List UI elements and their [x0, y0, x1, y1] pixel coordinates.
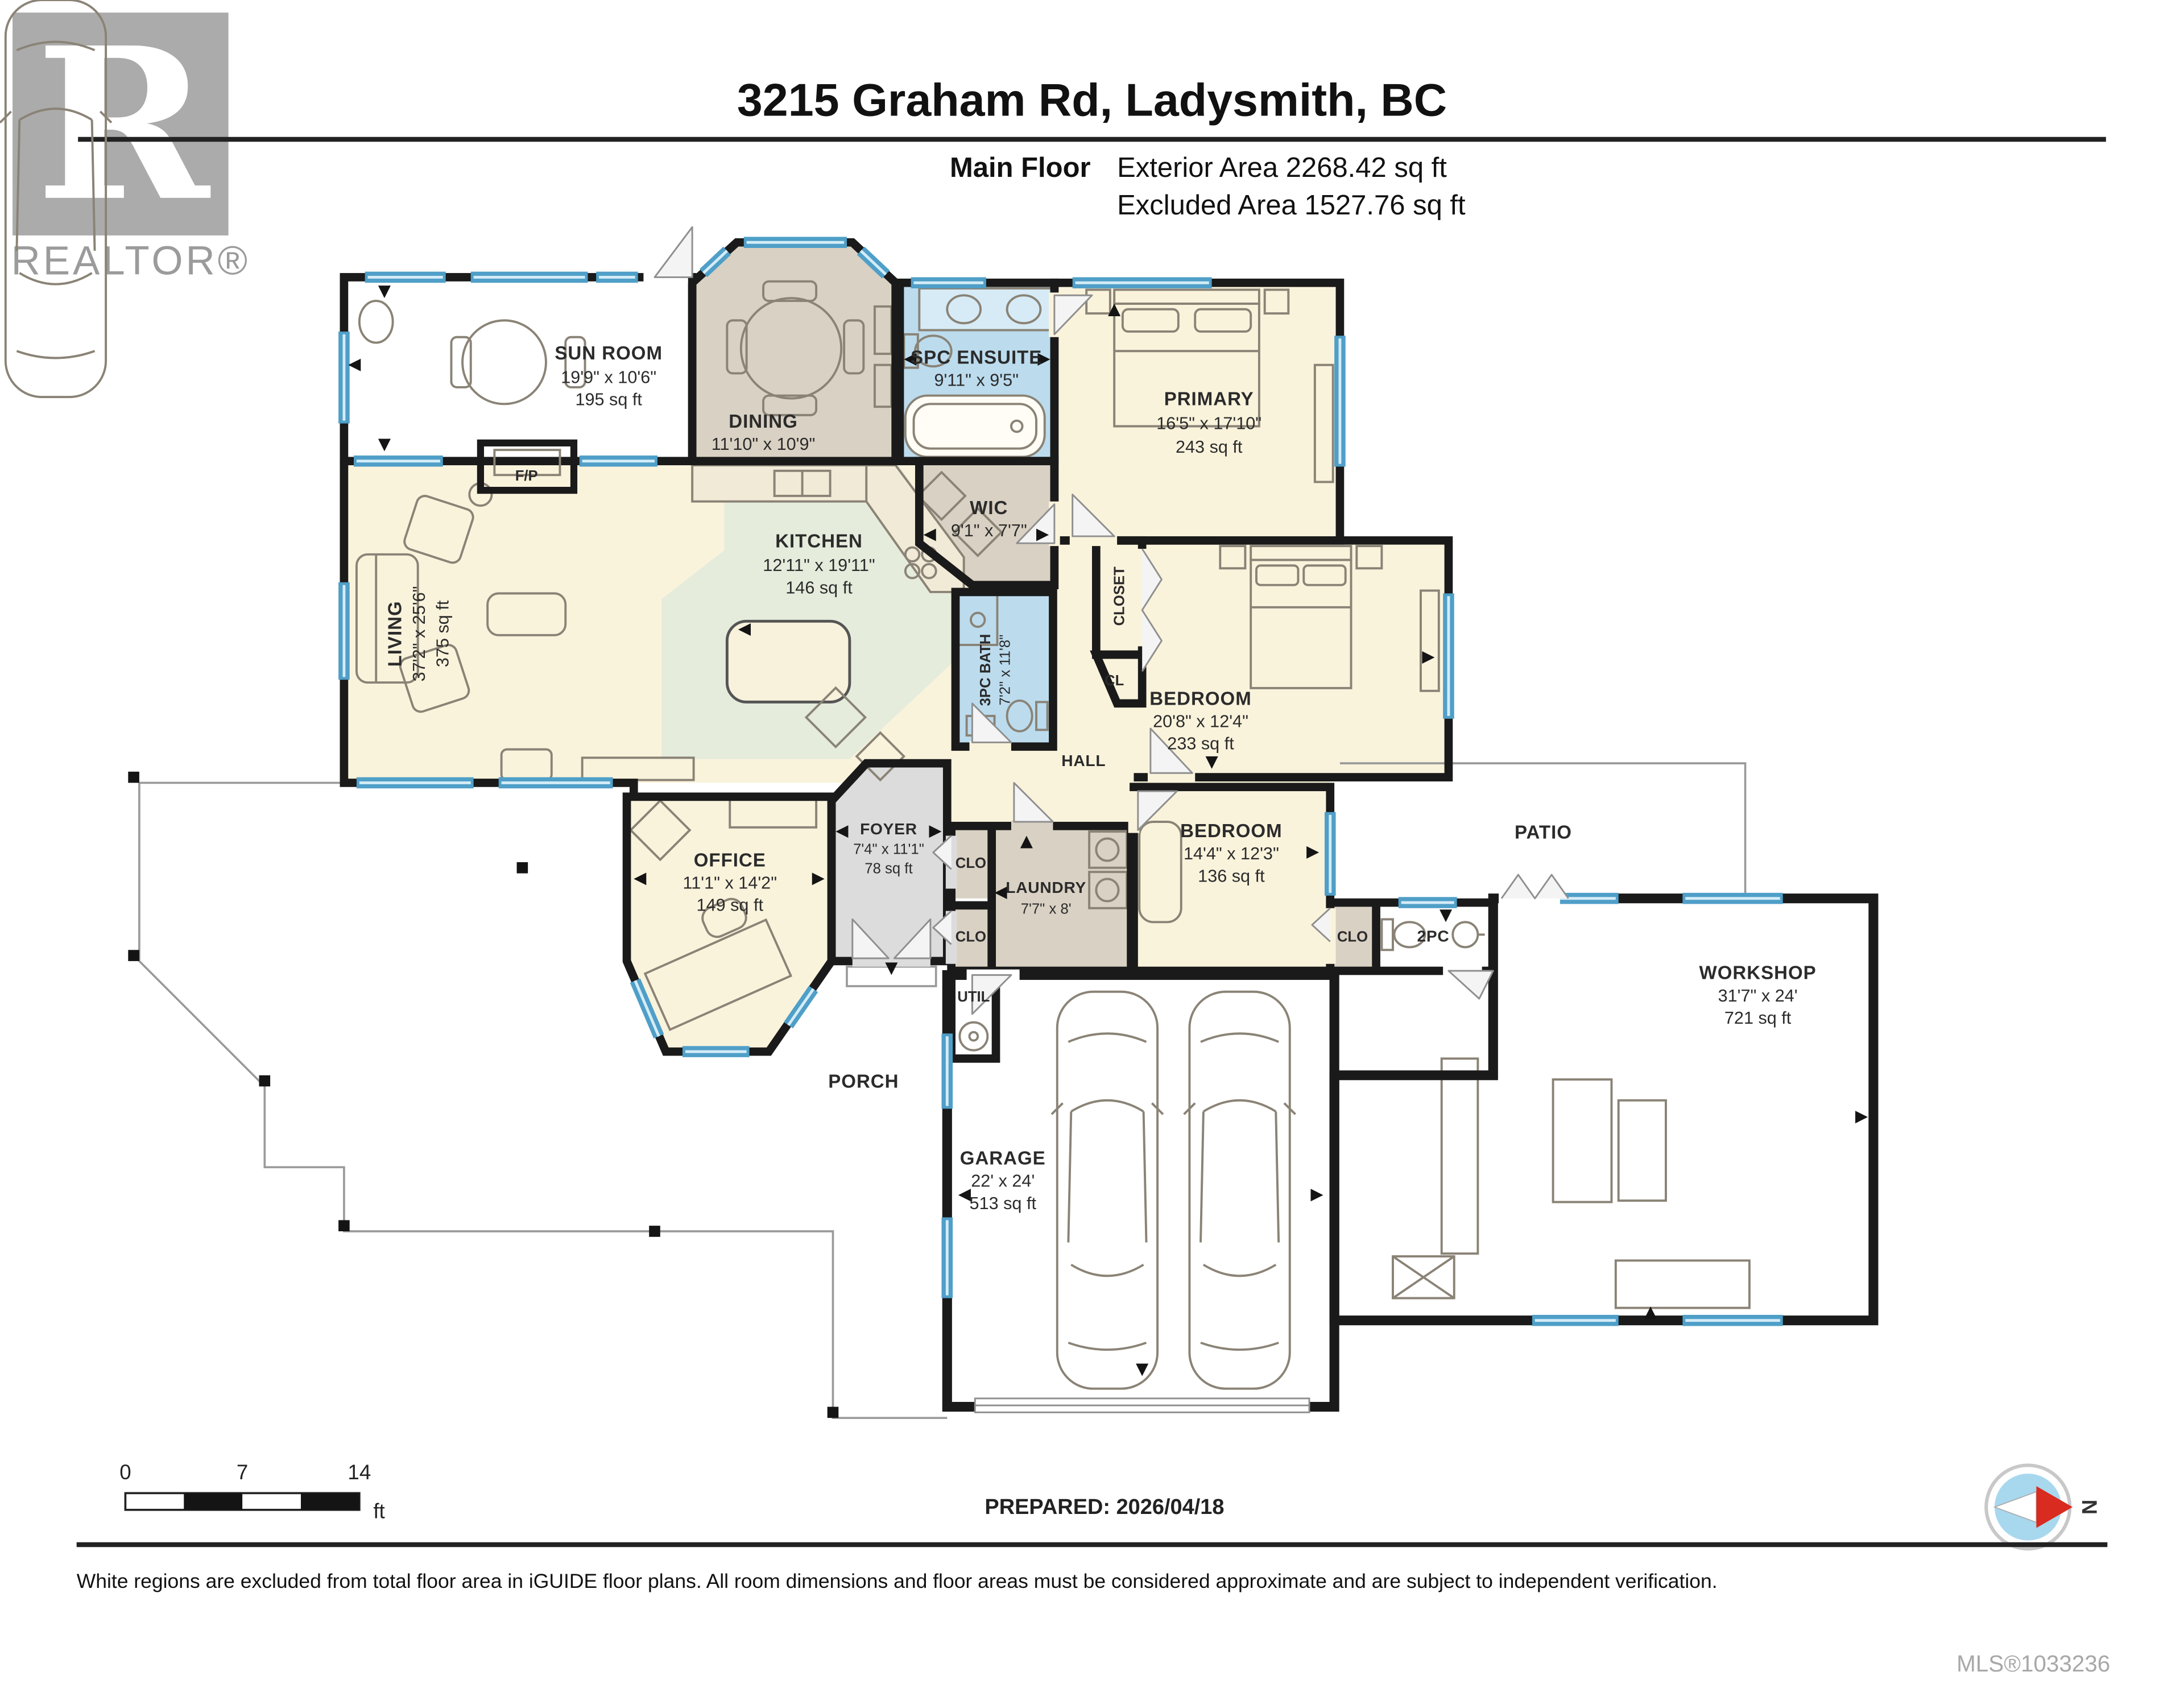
foyer-dims: 7'4" x 11'1": [853, 841, 924, 857]
prepared-date: PREPARED: 2026/04/18: [985, 1495, 1224, 1519]
page-title: 3215 Graham Rd, Ladysmith, BC: [737, 75, 1447, 126]
door-swing: [655, 227, 692, 277]
svg-text:3PC BATH: 3PC BATH: [978, 634, 994, 706]
bedroom-front-area: 136 sq ft: [1198, 866, 1265, 886]
scale-tick-0: 0: [119, 1460, 131, 1484]
laundry-dims: 7'7" x 8': [1021, 901, 1072, 917]
wic-dims: 9'1" x 7'7": [951, 521, 1027, 540]
floor-label: Main Floor: [950, 152, 1091, 183]
mls-number: MLS®1033236: [1956, 1650, 2110, 1677]
ensuite-dims: 9'11" x 9'5": [934, 370, 1019, 390]
office-name: OFFICE: [694, 850, 766, 871]
compass-icon: N: [1986, 1465, 2101, 1549]
workshop-name: WORKSHOP: [1699, 963, 1817, 984]
cl-label: CL: [1105, 673, 1124, 689]
realtor-logo-letter: R: [36, 2, 212, 247]
closet-label: CLOSET: [1111, 566, 1127, 626]
realtor-logo: R: [13, 2, 229, 247]
scale-unit: ft: [373, 1499, 384, 1522]
scale-bar: 0 7 14 ft: [119, 1460, 385, 1523]
garage-dims: 22' x 24': [971, 1172, 1035, 1191]
sun-room-dims: 19'9" x 10'6": [561, 368, 656, 387]
dining-dims: 11'10" x 10'9": [712, 435, 816, 454]
ensuite-vanity: [919, 288, 1054, 330]
ensuite-name: SPC ENSUITE: [911, 347, 1042, 368]
kitchen-island: [727, 621, 850, 702]
office-dims: 11'1" x 14'2": [682, 874, 777, 893]
fireplace-label: F/P: [515, 468, 538, 484]
bedroom-mid-area: 233 sq ft: [1167, 734, 1234, 754]
util-label: UTIL: [957, 989, 990, 1005]
exterior-area: Exterior Area 2268.42 sq ft: [1117, 152, 1447, 183]
bedroom-mid-name: BEDROOM: [1149, 688, 1251, 709]
kitchen-area: 146 sq ft: [785, 578, 853, 597]
compass-north-label: N: [2078, 1500, 2101, 1515]
foyer-area: 78 sq ft: [864, 861, 912, 877]
bedroom-front-name: BEDROOM: [1180, 821, 1282, 842]
kitchen-name: KITCHEN: [775, 531, 863, 552]
primary-area: 243 sq ft: [1176, 437, 1243, 457]
scale-tick-7: 7: [237, 1460, 248, 1484]
svg-text:CLOSET: CLOSET: [1111, 566, 1127, 626]
wic-name: WIC: [970, 498, 1008, 519]
workshop-dims: 31'7" x 24': [1718, 986, 1798, 1006]
garage-name: GARAGE: [960, 1148, 1046, 1169]
workshop-area: 721 sq ft: [1724, 1008, 1792, 1028]
foyer-name: FOYER: [860, 820, 917, 838]
svg-text:LIVING: LIVING: [384, 601, 406, 667]
scale-tick-14: 14: [348, 1460, 371, 1484]
sun-room-area: 195 sq ft: [575, 390, 642, 409]
porch-label: PORCH: [828, 1071, 899, 1093]
patio-label: PATIO: [1515, 822, 1572, 843]
bath-2pc-label: 2PC: [1417, 928, 1450, 945]
sun-room-name: SUN ROOM: [555, 343, 663, 364]
clo-label-3: CLO: [1337, 929, 1368, 945]
svg-text:7'2" x 11'8": 7'2" x 11'8": [998, 635, 1014, 706]
realtor-logo-text: REALTOR®: [11, 239, 250, 284]
kitchen-dims: 12'11" x 19'11": [763, 556, 875, 575]
svg-text:37'2" x 25'6": 37'2" x 25'6": [409, 586, 429, 681]
svg-text:375 sq ft: 375 sq ft: [433, 600, 453, 667]
primary-name: PRIMARY: [1164, 389, 1254, 410]
hall-label: HALL: [1061, 752, 1106, 769]
laundry-name: LAUNDRY: [1006, 879, 1086, 896]
office-area: 149 sq ft: [697, 896, 764, 915]
excluded-area: Excluded Area 1527.76 sq ft: [1117, 190, 1466, 221]
bedroom-front-dims: 14'4" x 12'3": [1184, 844, 1279, 863]
primary-dims: 16'5" x 17'10": [1156, 413, 1261, 433]
garage-area: 513 sq ft: [970, 1194, 1037, 1213]
clo-label-2: CLO: [955, 929, 986, 945]
floor-plan-page: R 3215 Graham Rd, Ladysmith, BC REALTOR®…: [0, 0, 2184, 1684]
disclaimer-text: White regions are excluded from total fl…: [77, 1570, 1718, 1592]
clo-label-1: CLO: [955, 855, 986, 871]
bedroom-mid-dims: 20'8" x 12'4": [1153, 711, 1248, 731]
dining-name: DINING: [729, 411, 798, 432]
